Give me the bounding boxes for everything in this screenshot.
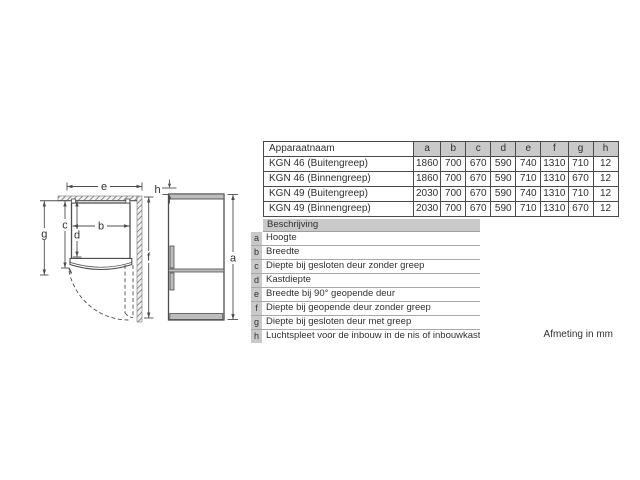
dim-a: a [228, 195, 239, 320]
dim-value-cell: 2030 [414, 202, 441, 217]
col-header-dim: a [414, 142, 441, 157]
legend-items: aHoogtebBreedtecDiepte bij gesloten deur… [251, 232, 480, 343]
dim-label-e: e [101, 181, 107, 193]
legend-key: f [251, 302, 262, 315]
dim-value-cell: 670 [466, 187, 491, 202]
legend-header: Beschrijving [263, 219, 480, 232]
fridge-top-cap [169, 194, 225, 199]
dim-value-cell: 1310 [541, 202, 568, 217]
legend-key: a [251, 232, 262, 245]
dim-value-cell: 1310 [541, 187, 568, 202]
legend-item: bBreedte [251, 246, 480, 260]
legend-item: dKastdiepte [251, 274, 480, 288]
dim-value-cell: 700 [441, 157, 466, 172]
col-header-dim: d [491, 142, 516, 157]
dim-value-cell: 590 [491, 202, 516, 217]
wall-spacer-left [72, 199, 76, 203]
col-header-name: Apparaatnaam [264, 142, 414, 157]
dim-value-cell: 1860 [414, 172, 441, 187]
legend-description: Hoogte [266, 232, 480, 245]
legend-key: h [251, 330, 262, 343]
dim-value-cell: 590 [491, 172, 516, 187]
col-header-dim: b [441, 142, 466, 157]
dim-label-g: g [41, 229, 47, 241]
dim-value-cell: 710 [516, 202, 541, 217]
dim-value-cell: 710 [568, 157, 593, 172]
dim-value-cell: 12 [593, 172, 618, 187]
dim-label-h: h [154, 184, 160, 196]
fridge-plinth [170, 314, 223, 320]
dim-value-cell: 700 [441, 202, 466, 217]
legend-description: Breedte bij 90° geopende deur [266, 288, 480, 301]
dim-value-cell: 1310 [541, 172, 568, 187]
legend-item: gDiepte bij gesloten deur met greep [251, 316, 480, 330]
dim-value-cell: 710 [516, 172, 541, 187]
fridge-door-closed [70, 259, 132, 270]
dim-value-cell: 700 [441, 172, 466, 187]
dim-value-cell: 12 [593, 202, 618, 217]
legend-item: cDiepte bij gesloten deur zonder greep [251, 260, 480, 274]
dim-value-cell: 670 [466, 157, 491, 172]
col-header-dim: g [568, 142, 593, 157]
legend-item: aHoogte [251, 232, 480, 246]
units-note: Afmeting in mm [465, 329, 613, 340]
legend-item: eBreedte bij 90° geopende deur [251, 288, 480, 302]
fridge-front-view [169, 194, 225, 320]
legend-key: b [251, 246, 262, 259]
wall-spacer-right [126, 199, 130, 203]
fridge-divider [169, 269, 225, 272]
dim-value-cell: 700 [441, 187, 466, 202]
dim-c: c [61, 201, 69, 268]
legend-description: Diepte bij geopende deur zonder greep [266, 302, 480, 315]
dim-g: g [40, 201, 49, 275]
legend-key: e [251, 288, 262, 301]
model-name-cell: KGN 49 (Buitengreep) [264, 187, 414, 202]
legend-description: Breedte [266, 246, 480, 259]
manual-page: e b g c [0, 0, 640, 480]
spec-table-head: Apparaatnaamabcdefgh [264, 142, 619, 157]
door-swing-arc [69, 271, 130, 320]
legend-key: g [251, 316, 262, 329]
legend-item: hLuchtspleet voor de inbouw in de nis of… [251, 330, 480, 343]
legend-key: c [251, 260, 262, 273]
legend-description: Luchtspleet voor de inbouw in de nis of … [266, 330, 480, 343]
col-header-dim: e [516, 142, 541, 157]
legend-description: Diepte bij gesloten deur met greep [266, 316, 480, 329]
col-header-dim: f [541, 142, 568, 157]
fridge-handle-lower [170, 273, 174, 290]
legend-item: fDiepte bij geopende deur zonder greep [251, 302, 480, 316]
dim-f: f [144, 197, 154, 318]
dim-value-cell: 590 [491, 187, 516, 202]
legend-key: d [251, 274, 262, 287]
dim-label-d: d [74, 230, 80, 242]
dim-value-cell: 670 [466, 172, 491, 187]
table-row: KGN 46 (Buitengreep)18607006705907401310… [264, 157, 619, 172]
dim-e: e [67, 181, 142, 193]
legend: Beschrijving aHoogtebBreedtecDiepte bij … [251, 219, 480, 343]
table-header-row: Apparaatnaamabcdefgh [264, 142, 619, 157]
dim-label-b: b [98, 221, 104, 233]
fridge-front-body [169, 194, 225, 320]
dimension-diagram: e b g c [30, 168, 245, 345]
dim-value-cell: 740 [516, 187, 541, 202]
dim-value-cell: 12 [593, 157, 618, 172]
dim-value-cell: 12 [593, 187, 618, 202]
dim-value-cell: 740 [516, 157, 541, 172]
legend-description: Kastdiepte [266, 274, 480, 287]
model-name-cell: KGN 46 (Binnengreep) [264, 172, 414, 187]
dim-value-cell: 1860 [414, 157, 441, 172]
dim-value-cell: 590 [491, 157, 516, 172]
door-swing-open [69, 265, 133, 320]
table-row: KGN 49 (Binnengreep)20307006705907101310… [264, 202, 619, 217]
dim-value-cell: 710 [568, 187, 593, 202]
dim-value-cell: 670 [568, 172, 593, 187]
col-header-dim: h [593, 142, 618, 157]
legend-description: Diepte bij gesloten deur zonder greep [266, 260, 480, 273]
dim-value-cell: 670 [466, 202, 491, 217]
spec-table-body: KGN 46 (Buitengreep)18607006705907401310… [264, 157, 619, 217]
table-row: KGN 49 (Buitengreep)20307006705907401310… [264, 187, 619, 202]
dim-label-f: f [147, 252, 151, 264]
open-door-end-cap [125, 313, 133, 318]
dim-value-cell: 1310 [541, 157, 568, 172]
dim-label-c: c [62, 220, 68, 232]
dim-label-a: a [230, 253, 237, 265]
table-row: KGN 46 (Binnengreep)18607006705907101310… [264, 172, 619, 187]
model-name-cell: KGN 49 (Binnengreep) [264, 202, 414, 217]
dim-value-cell: 2030 [414, 187, 441, 202]
model-name-cell: KGN 46 (Buitengreep) [264, 157, 414, 172]
spec-table: Apparaatnaamabcdefgh KGN 46 (Buitengreep… [263, 141, 619, 217]
dim-value-cell: 670 [568, 202, 593, 217]
col-header-dim: c [466, 142, 491, 157]
fridge-handle-upper [170, 246, 174, 268]
